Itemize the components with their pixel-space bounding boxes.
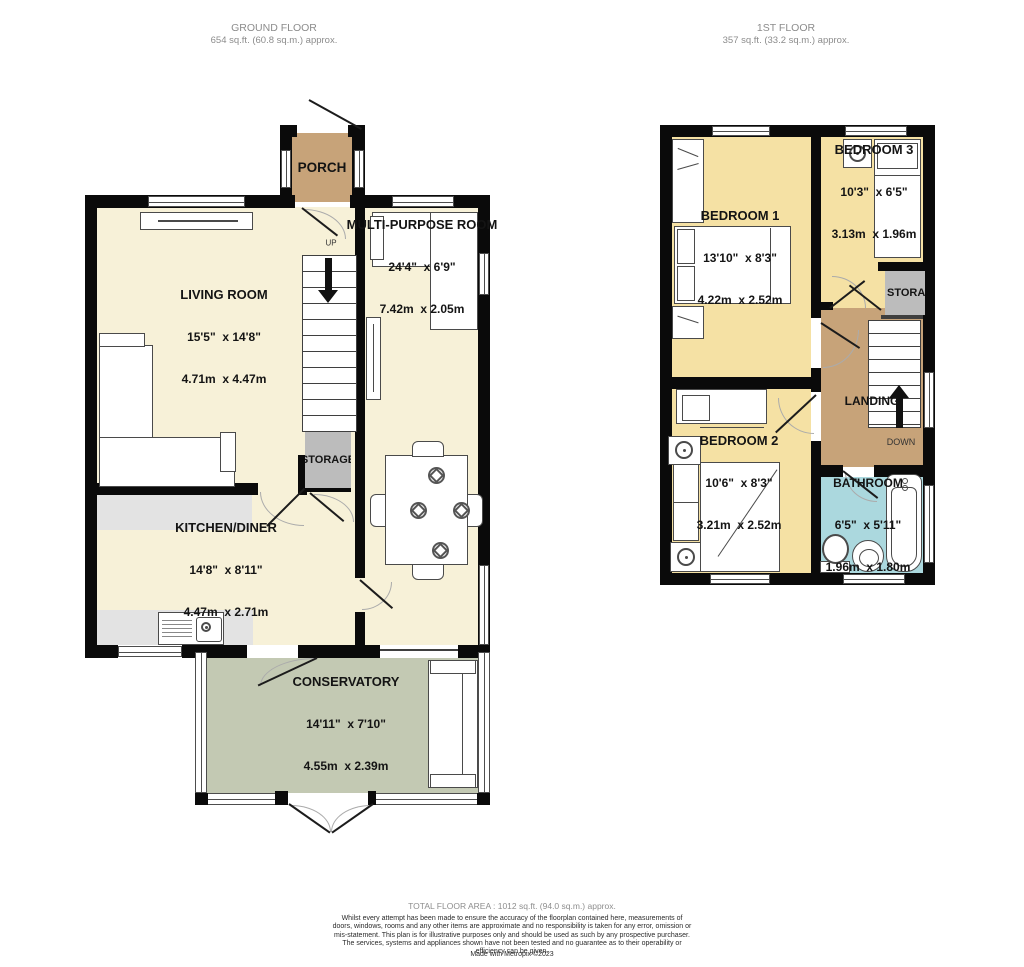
bathroom-side-window — [924, 485, 934, 563]
room-dims-imperial: 6'5" x 5'11" — [826, 518, 911, 532]
ground-floor-header: GROUND FLOOR 654 sq.ft. (60.8 sq.m.) app… — [59, 22, 489, 47]
landing-label: LANDING — [845, 394, 900, 408]
first-storage-label: STORAGE — [887, 287, 925, 299]
tall-wardrobe — [673, 464, 699, 541]
sideboard-detail — [158, 220, 238, 222]
french-door-jamb-left — [275, 791, 288, 805]
kitchen-window — [118, 646, 182, 657]
ground-storage-box: STORAGE — [305, 432, 351, 492]
place-setting-icon — [428, 467, 445, 484]
room-name: MULTI-PURPOSE ROOM — [347, 218, 498, 232]
room-dims-metric: 1.96m x 1.80m — [826, 560, 911, 574]
floorplan-page: GROUND FLOOR 654 sq.ft. (60.8 sq.m.) app… — [0, 0, 1024, 967]
room-dims-metric: 7.42m x 2.05m — [347, 302, 498, 316]
first-wall-left — [660, 125, 672, 585]
first-central-wall-mid — [811, 368, 821, 392]
dining-window-right — [479, 565, 489, 645]
up-label: UP — [325, 239, 336, 248]
down-label: DOWN — [887, 437, 916, 447]
pillow — [677, 229, 695, 264]
conservatory-sofa-armrest-top — [430, 660, 476, 674]
storage-wall-bottom — [881, 315, 923, 319]
dining-chair-bottom — [412, 564, 444, 580]
hanger-icon — [678, 148, 699, 157]
corner-sofa-horizontal — [99, 437, 235, 487]
first-floor-area: 357 sq.ft. (33.2 sq.m.) approx. — [571, 35, 1001, 47]
room-dims-metric: 3.13m x 1.96m — [832, 227, 917, 241]
wardrobe-shelf-line — [674, 502, 698, 503]
room-dims-imperial: 13'10" x 8'3" — [698, 251, 783, 265]
conservatory-post-br — [477, 793, 490, 805]
room-dims-metric: 3.21m x 2.52m — [697, 518, 782, 532]
ground-internal-wall-vertical-stub — [355, 612, 365, 645]
first-central-wall-lower — [811, 441, 821, 573]
kitchen-diner-label: KITCHEN/DINER 14'8" x 8'11" 4.47m x 2.71… — [175, 493, 277, 647]
lamp-icon — [675, 441, 693, 459]
room-name: KITCHEN/DINER — [175, 521, 277, 535]
room-dims-metric: 4.55m x 2.39m — [293, 759, 400, 773]
conservatory-post-bl — [195, 793, 208, 805]
ground-wall-left — [85, 195, 97, 658]
room-name: LIVING ROOM — [180, 288, 267, 302]
room-dims-metric: 4.22m x 2.52m — [698, 293, 783, 307]
room-dims-metric: 4.47m x 2.71m — [175, 605, 277, 619]
place-setting-icon — [453, 502, 470, 519]
dining-chair-left — [370, 494, 386, 527]
bedroom1-bedroom2-divider — [672, 377, 811, 389]
bedroom2-window — [710, 574, 770, 584]
bedroom1-window — [712, 126, 770, 136]
living-room-window — [148, 196, 245, 207]
first-central-wall-upper — [811, 137, 821, 318]
sofa-armrest-top — [99, 333, 145, 347]
first-storage-box: STORAGE — [885, 271, 925, 315]
porch-window-left — [281, 150, 291, 188]
bedroom1-label: BEDROOM 1 13'10" x 8'3" 4.22m x 2.52m — [698, 181, 783, 335]
bedroom2-label: BEDROOM 2 10'6" x 8'3" 3.21m x 2.52m — [697, 406, 782, 560]
first-stairs — [868, 320, 921, 428]
hanger-icon — [677, 316, 698, 324]
room-name: CONSERVATORY — [293, 675, 400, 689]
room-name: BEDROOM 3 — [832, 143, 917, 157]
living-room-label: LIVING ROOM 15'5" x 14'8" 4.71m x 4.47m — [180, 260, 267, 414]
hanger-icon — [677, 163, 698, 170]
conservatory-sofa — [428, 660, 478, 788]
room-dims-imperial: 10'3" x 6'5" — [832, 185, 917, 199]
conservatory-sofa-armrest-bottom — [430, 774, 476, 788]
conservatory-sofa-back — [462, 663, 475, 785]
conservatory-label: CONSERVATORY 14'11" x 7'10" 4.55m x 2.39… — [293, 647, 400, 801]
room-dims-imperial: 14'11" x 7'10" — [293, 717, 400, 731]
pillow — [677, 266, 695, 301]
ground-floor-title: GROUND FLOOR — [59, 22, 489, 35]
lamp-icon — [677, 548, 695, 566]
stairwell-window — [924, 372, 934, 428]
first-floor-title: 1ST FLOOR — [571, 22, 1001, 35]
room-dims-imperial: 15'5" x 14'8" — [180, 330, 267, 344]
porch-window-right — [354, 150, 364, 188]
credit-text: Made with Metropix ©2023 — [332, 951, 692, 959]
porch-wall-stub-left — [280, 125, 297, 137]
ground-stairs-arrow-shaft — [325, 258, 332, 292]
multi-purpose-label: MULTI-PURPOSE ROOM 24'4" x 6'9" 7.42m x … — [347, 190, 498, 344]
conservatory-glazing-right — [478, 652, 490, 793]
down-arrow-icon — [318, 290, 338, 303]
first-floor-header: 1ST FLOOR 357 sq.ft. (33.2 sq.m.) approx… — [571, 22, 1001, 47]
room-name: BEDROOM 1 — [698, 209, 783, 223]
conservatory-glazing-left — [195, 652, 207, 793]
place-setting-icon — [410, 502, 427, 519]
total-floor-area: TOTAL FLOOR AREA : 1012 sq.ft. (94.0 sq.… — [262, 901, 762, 911]
place-setting-icon — [432, 542, 449, 559]
ground-floor-area: 654 sq.ft. (60.8 sq.m.) approx. — [59, 35, 489, 47]
bathroom-label: BATHROOM 6'5" x 5'11" 1.96m x 1.80m — [826, 448, 911, 602]
room-dims-imperial: 14'8" x 8'11" — [175, 563, 277, 577]
porch-label: PORCH — [298, 161, 347, 175]
room-dims-imperial: 10'6" x 8'3" — [697, 476, 782, 490]
room-dims-metric: 4.71m x 4.47m — [180, 372, 267, 386]
ground-wall-bottom-1 — [85, 645, 118, 658]
room-dims-imperial: 24'4" x 6'9" — [347, 260, 498, 274]
porch-door-leaf — [309, 99, 362, 130]
room-name: BEDROOM 2 — [697, 434, 782, 448]
sofa-armrest-right — [220, 432, 236, 472]
dining-chair-top — [412, 441, 444, 457]
room-name: BATHROOM — [826, 476, 911, 490]
ground-storage-label: STORAGE — [305, 454, 351, 466]
bedroom3-label: BEDROOM 3 10'3" x 6'5" 3.13m x 1.96m — [832, 115, 917, 269]
